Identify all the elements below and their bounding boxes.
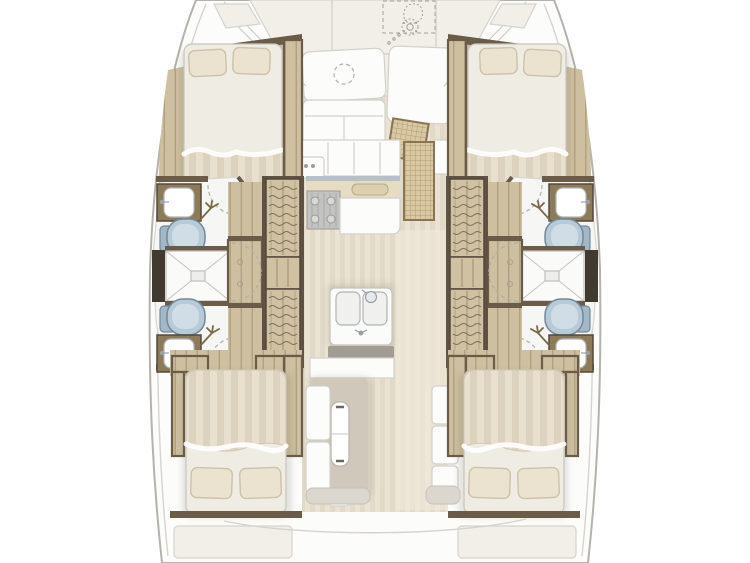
companionway <box>228 176 304 368</box>
double-bed <box>186 370 286 514</box>
stove-icon <box>307 191 340 229</box>
galley-tray <box>352 184 388 195</box>
shower-stall <box>152 246 231 306</box>
counter-edge <box>306 176 400 181</box>
catamaran-floor-plan <box>0 0 750 563</box>
transom-seat <box>174 526 292 558</box>
vanity-sink <box>157 184 201 221</box>
aft-cabin <box>170 350 302 518</box>
lounge-cushion <box>387 46 454 124</box>
aft-bulkhead <box>170 511 302 518</box>
pillow <box>233 47 271 74</box>
vestibule <box>228 240 262 304</box>
stairs-down <box>266 179 300 257</box>
aft-seat-back <box>306 488 370 504</box>
stairs-landing <box>266 257 300 289</box>
galley-counter <box>340 198 400 234</box>
pillow <box>190 467 232 498</box>
galley-island <box>310 358 394 378</box>
bench-seat <box>306 442 330 494</box>
lounge-cushion <box>302 48 387 102</box>
rattan-bench <box>404 142 434 220</box>
bench-seat <box>306 386 330 440</box>
floor-plan-stage <box>0 0 750 563</box>
aft-seat-back <box>426 486 460 504</box>
pillow <box>188 49 226 77</box>
pillow <box>239 467 281 498</box>
galley-sink <box>330 288 392 345</box>
dining-table <box>331 402 349 466</box>
coffee-machine-icon <box>300 157 324 178</box>
galley-worktop <box>328 346 394 358</box>
